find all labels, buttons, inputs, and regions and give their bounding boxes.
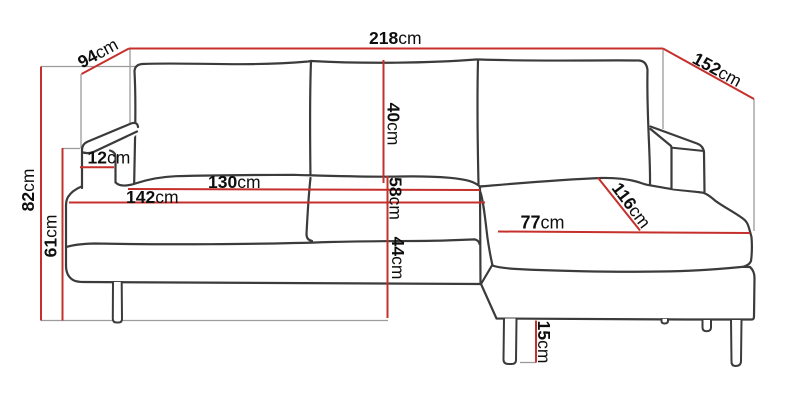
svg-text:15cm: 15cm <box>534 321 554 364</box>
svg-text:77cm: 77cm <box>521 212 565 232</box>
svg-text:58cm: 58cm <box>385 177 405 220</box>
svg-text:44cm: 44cm <box>388 237 408 280</box>
svg-text:40cm: 40cm <box>383 103 403 146</box>
svg-text:61cm: 61cm <box>41 215 61 258</box>
svg-text:82cm: 82cm <box>18 169 38 212</box>
svg-text:142cm: 142cm <box>126 187 179 207</box>
svg-text:130cm: 130cm <box>208 172 261 192</box>
svg-text:12cm: 12cm <box>88 148 131 168</box>
svg-text:218cm: 218cm <box>369 28 422 48</box>
